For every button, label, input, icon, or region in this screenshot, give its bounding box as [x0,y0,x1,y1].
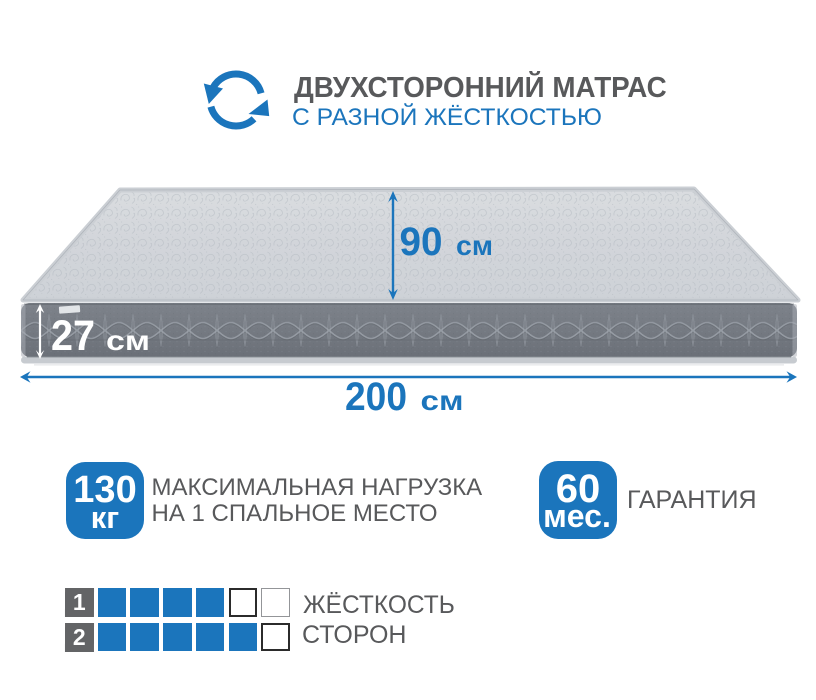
svg-text:90: 90 [400,220,443,264]
svg-text:см: см [106,325,150,356]
svg-text:27: 27 [51,312,95,360]
svg-text:см: см [421,385,464,416]
svg-text:200: 200 [345,375,407,419]
svg-text:см: см [456,230,493,261]
